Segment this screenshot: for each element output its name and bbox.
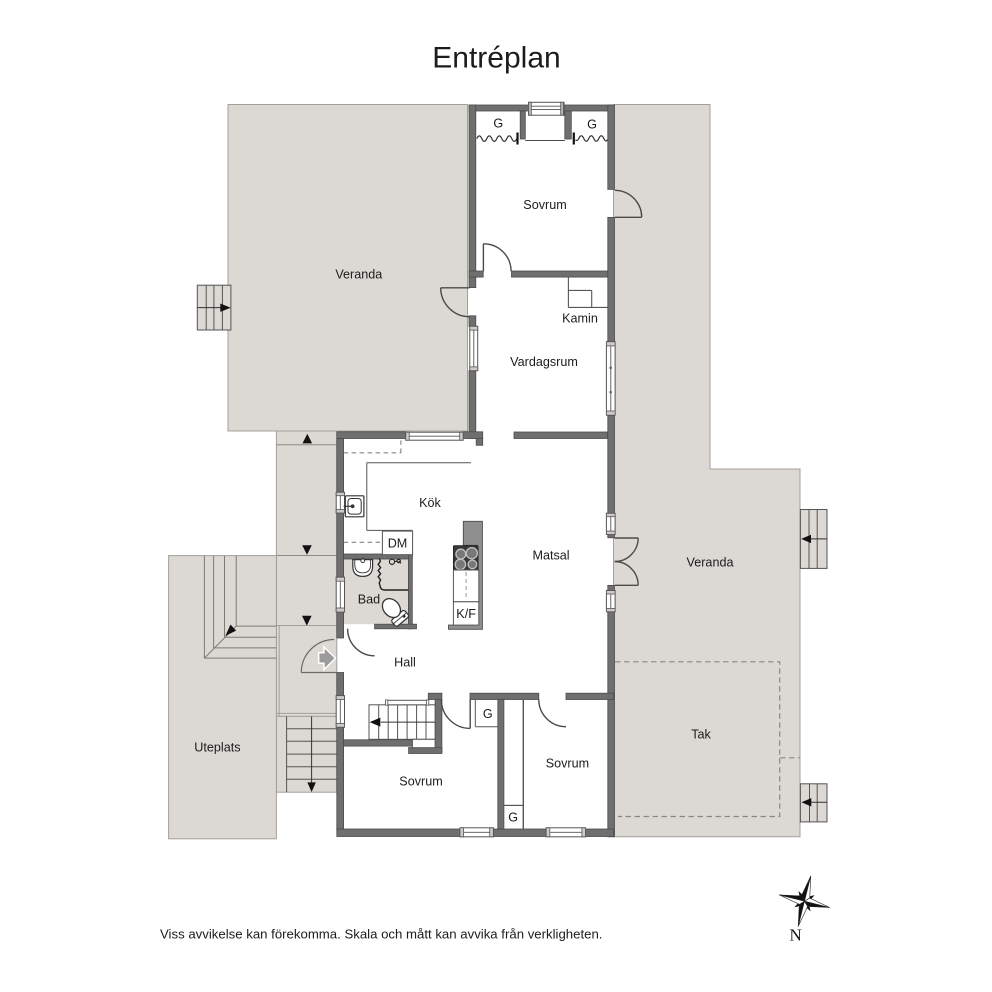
svg-text:Bad: Bad bbox=[358, 593, 380, 607]
svg-text:G: G bbox=[483, 707, 493, 721]
svg-text:Tak: Tak bbox=[691, 728, 711, 742]
svg-text:Uteplats: Uteplats bbox=[194, 741, 240, 755]
svg-text:G: G bbox=[493, 117, 503, 131]
svg-text:N: N bbox=[790, 926, 802, 945]
svg-text:Vardagsrum: Vardagsrum bbox=[510, 355, 578, 369]
svg-text:Sovrum: Sovrum bbox=[546, 757, 589, 771]
svg-text:Kök: Kök bbox=[419, 496, 441, 510]
svg-text:Veranda: Veranda bbox=[335, 268, 382, 282]
svg-text:G: G bbox=[508, 811, 518, 825]
svg-text:G: G bbox=[587, 118, 597, 132]
svg-text:Veranda: Veranda bbox=[687, 556, 734, 570]
svg-text:Viss avvikelse kan förekomma.: Viss avvikelse kan förekomma. Skala och … bbox=[160, 927, 602, 942]
svg-text:DM: DM bbox=[388, 537, 408, 551]
svg-text:Sovrum: Sovrum bbox=[399, 775, 442, 789]
svg-text:Matsal: Matsal bbox=[532, 549, 569, 563]
svg-text:K/F: K/F bbox=[456, 607, 476, 621]
svg-text:Entréplan: Entréplan bbox=[432, 42, 560, 75]
svg-text:Kamin: Kamin bbox=[562, 312, 598, 326]
svg-text:Sovrum: Sovrum bbox=[523, 198, 566, 212]
svg-text:Hall: Hall bbox=[394, 656, 416, 670]
